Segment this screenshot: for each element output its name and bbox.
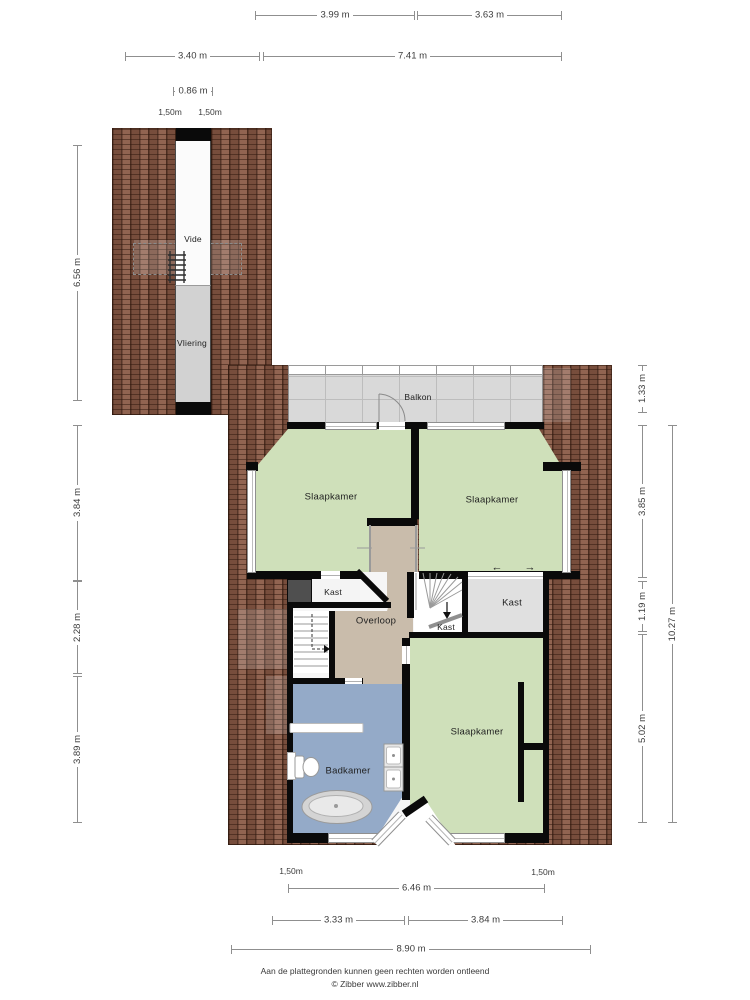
door-opening — [345, 678, 362, 684]
window — [325, 422, 377, 430]
dim-top-1: 3.99 m — [255, 11, 415, 20]
dim-right-5: 10.27 m — [668, 425, 677, 823]
wall-segment — [411, 422, 419, 519]
footer-disclaimer: Aan de plattegronden kunnen geen rechten… — [0, 966, 750, 976]
dim-right-3: 1.19 m — [638, 581, 647, 632]
wall-segment — [543, 572, 549, 638]
stairwell-lower — [293, 611, 329, 673]
wall-segment — [505, 833, 549, 843]
wall-segment — [287, 605, 293, 835]
dim-bottom-1: 6.46 m — [288, 884, 545, 893]
wall-segment — [524, 743, 543, 750]
door-opening-balcony — [379, 422, 405, 430]
roof-light-patch — [238, 609, 288, 669]
room-vide — [175, 141, 211, 285]
sliding-door-arrow-left: ← — [492, 563, 503, 574]
window — [427, 422, 505, 430]
headroom-label: 1,50m — [198, 107, 222, 117]
dim-top-4: 7.41 m — [263, 52, 562, 61]
dim-vide-width: 0.86 m — [173, 87, 213, 96]
door-opening — [402, 646, 410, 664]
label-slaapkamer-top-left: Slaapkamer — [305, 492, 358, 503]
wall-segment — [462, 572, 468, 638]
label-kast-left: Kast — [324, 587, 342, 597]
label-balkon: Balkon — [404, 392, 431, 402]
label-kast-right: Kast — [502, 598, 522, 609]
label-badkamer: Badkamer — [326, 766, 371, 777]
wall-segment — [287, 833, 328, 843]
room-badkamer — [293, 684, 403, 843]
door-opening — [321, 571, 340, 579]
wall-segment — [329, 611, 335, 678]
dim-left-3: 2.28 m — [73, 581, 82, 674]
wall-segment — [287, 602, 391, 608]
headroom-label: 1,50m — [158, 107, 182, 117]
wall-segment — [407, 572, 414, 618]
roof-light-patch — [266, 676, 288, 734]
window — [448, 833, 505, 843]
footer-copyright: © Zibber www.zibber.nl — [0, 979, 750, 989]
wall-segment — [543, 638, 549, 843]
label-kast-under-stairs: Kast — [437, 622, 455, 632]
dim-top-3: 3.40 m — [125, 52, 260, 61]
dim-right-1: 1.33 m — [638, 365, 647, 413]
headroom-label: 1,50m — [531, 867, 555, 877]
headroom-dashed-outline — [206, 243, 242, 275]
wall-segment — [176, 128, 211, 141]
dim-top-2: 3.63 m — [417, 11, 562, 20]
wall-segment — [518, 682, 524, 802]
label-vide: Vide — [184, 234, 202, 244]
dim-bottom-3: 3.84 m — [408, 916, 563, 925]
dim-right-2: 3.85 m — [638, 425, 647, 578]
label-slaapkamer-bottom: Slaapkamer — [451, 727, 504, 738]
dim-left-4: 3.89 m — [73, 676, 82, 823]
floorplan-page: ← → Vide Vliering Balkon Slaapkamer Slaa… — [0, 0, 750, 1000]
window — [328, 833, 380, 843]
wall-segment — [247, 571, 361, 579]
label-vliering: Vliering — [177, 338, 207, 348]
window — [562, 470, 571, 573]
wall-segment — [176, 402, 211, 415]
dim-left-1: 6.56 m — [73, 145, 82, 401]
roof-light-patch — [543, 368, 571, 422]
balcony-railing — [288, 365, 543, 375]
dim-bottom-4: 8.90 m — [231, 945, 591, 954]
wall-segment — [409, 632, 549, 638]
wall-segment — [367, 518, 417, 526]
dim-bottom-2: 3.33 m — [272, 916, 405, 925]
shaft — [287, 579, 312, 603]
window — [247, 470, 256, 573]
headroom-dashed-outline — [133, 243, 177, 275]
sliding-door-arrow-right: → — [525, 563, 536, 574]
dim-right-4: 5.02 m — [638, 634, 647, 823]
headroom-label: 1,50m — [279, 866, 303, 876]
label-slaapkamer-top-right: Slaapkamer — [466, 495, 519, 506]
label-overloop: Overloop — [356, 616, 396, 627]
dim-left-2: 3.84 m — [73, 425, 82, 581]
